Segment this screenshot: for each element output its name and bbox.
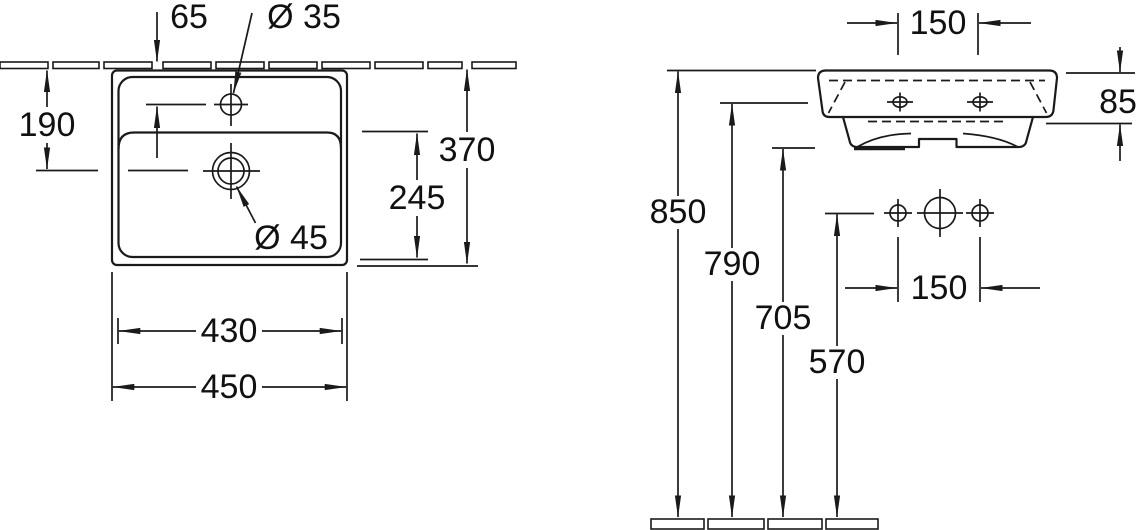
dim-label-85: 85 bbox=[1099, 83, 1137, 121]
floor-tiles bbox=[651, 519, 878, 529]
drain-hole bbox=[203, 143, 260, 199]
front-view: 150 85 150 bbox=[650, 4, 1137, 529]
bowl-rear-edge bbox=[119, 133, 342, 150]
dim-tap-diameter: Ø 35 bbox=[234, 0, 341, 93]
tile bbox=[472, 62, 516, 69]
basin-body bbox=[818, 71, 1057, 118]
underside-curve-left bbox=[858, 134, 911, 147]
drawing-canvas: 65 Ø 35 190 370 245 bbox=[0, 0, 1140, 530]
tap-hole bbox=[214, 84, 248, 126]
dim-label-705: 705 bbox=[755, 299, 812, 337]
tile bbox=[375, 62, 423, 69]
dim-label-850: 850 bbox=[650, 193, 707, 231]
dim-fixing-hole-spacing: 150 bbox=[845, 237, 1040, 307]
tile bbox=[768, 519, 822, 529]
dim-label-245: 245 bbox=[389, 179, 446, 217]
dim-tap-setback: 65 bbox=[146, 0, 208, 158]
plan-view: 65 Ø 35 190 370 245 bbox=[0, 0, 516, 406]
dim-label-190: 190 bbox=[19, 106, 76, 144]
dim-drain-diameter: Ø 45 bbox=[237, 187, 328, 258]
dim-wall-to-drain: 190 bbox=[19, 71, 188, 171]
dim-label-370: 370 bbox=[439, 131, 496, 169]
wall-holes bbox=[884, 189, 994, 237]
tile bbox=[0, 62, 48, 69]
dim-label-450: 450 bbox=[201, 368, 258, 406]
bowl-hidden-line-right bbox=[1030, 82, 1047, 113]
dim-label-65: 65 bbox=[170, 0, 208, 36]
underside-curve-right bbox=[963, 134, 1017, 147]
leader-line bbox=[237, 187, 256, 224]
tile bbox=[826, 519, 878, 529]
dim-label-150-bottom: 150 bbox=[911, 269, 968, 307]
dim-label-d35: Ø 35 bbox=[267, 0, 341, 36]
dim-fixing-hole-height: 570 bbox=[809, 214, 874, 518]
tile bbox=[708, 519, 764, 529]
dim-underside-height: 705 bbox=[755, 148, 815, 517]
tile bbox=[53, 62, 99, 69]
tile bbox=[651, 519, 704, 529]
dim-label-150-top: 150 bbox=[910, 4, 967, 42]
tile bbox=[163, 62, 211, 69]
dim-label-430: 430 bbox=[201, 312, 258, 350]
dim-inner-depth: 245 bbox=[360, 132, 445, 260]
tile bbox=[269, 62, 317, 69]
leader-line bbox=[234, 13, 253, 93]
dim-widths: 430 450 bbox=[112, 272, 347, 406]
bowl-hidden-line-left bbox=[829, 82, 846, 113]
tile bbox=[322, 62, 370, 69]
dim-label-570: 570 bbox=[809, 343, 866, 381]
dim-basin-height: 85 bbox=[1046, 47, 1137, 161]
dim-label-790: 790 bbox=[704, 245, 761, 283]
dim-label-d45: Ø 45 bbox=[254, 219, 328, 257]
tile bbox=[428, 62, 462, 69]
tile bbox=[104, 62, 152, 69]
technical-drawing: 65 Ø 35 190 370 245 bbox=[0, 0, 1140, 530]
dim-tap-hole-spacing: 150 bbox=[847, 4, 1031, 55]
dim-overall-depth: 370 bbox=[357, 70, 495, 267]
wall-tiles bbox=[0, 62, 516, 69]
rim-tap-holes bbox=[887, 93, 993, 112]
